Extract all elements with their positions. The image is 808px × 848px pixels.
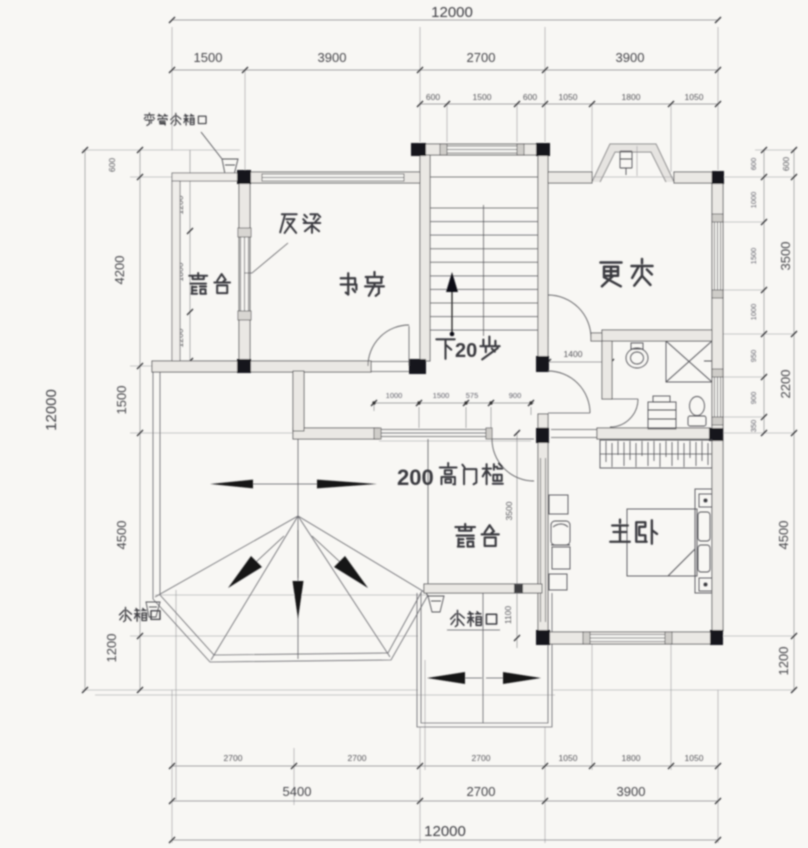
svg-text:600: 600 xyxy=(523,92,537,102)
svg-text:1000: 1000 xyxy=(386,391,403,400)
svg-text:600: 600 xyxy=(749,158,758,171)
svg-text:5400: 5400 xyxy=(283,784,312,799)
svg-text:900: 900 xyxy=(509,391,522,400)
svg-text:20: 20 xyxy=(455,340,477,362)
svg-text:2700: 2700 xyxy=(467,784,496,799)
svg-text:1100: 1100 xyxy=(503,606,513,625)
svg-text:600: 600 xyxy=(781,157,791,171)
svg-text:600: 600 xyxy=(426,92,440,102)
svg-text:3500: 3500 xyxy=(778,242,793,271)
svg-text:2700: 2700 xyxy=(467,50,496,65)
svg-text:2700: 2700 xyxy=(472,753,491,763)
svg-text:1500: 1500 xyxy=(473,92,492,102)
svg-text:2200: 2200 xyxy=(778,370,793,399)
svg-text:1500: 1500 xyxy=(749,248,758,265)
svg-text:900: 900 xyxy=(749,392,758,405)
svg-text:950: 950 xyxy=(749,350,758,363)
svg-text:4200: 4200 xyxy=(112,256,127,285)
svg-text:600: 600 xyxy=(107,158,117,172)
svg-text:2700: 2700 xyxy=(348,753,367,763)
svg-text:1800: 1800 xyxy=(622,753,641,763)
svg-text:12000: 12000 xyxy=(43,389,60,431)
svg-text:1050: 1050 xyxy=(685,92,704,102)
svg-text:4500: 4500 xyxy=(776,521,791,550)
svg-text:12000: 12000 xyxy=(431,4,473,21)
svg-text:3900: 3900 xyxy=(318,50,347,65)
svg-text:1200: 1200 xyxy=(776,647,791,676)
svg-text:1500: 1500 xyxy=(194,50,223,65)
svg-text:3900: 3900 xyxy=(617,784,646,799)
svg-text:12000: 12000 xyxy=(424,823,466,840)
svg-text:1000: 1000 xyxy=(749,192,758,209)
svg-text:3500: 3500 xyxy=(504,501,514,520)
svg-text:1050: 1050 xyxy=(559,92,578,102)
svg-text:1800: 1800 xyxy=(622,92,641,102)
svg-text:1050: 1050 xyxy=(559,753,578,763)
svg-text:1050: 1050 xyxy=(685,753,704,763)
svg-text:1200: 1200 xyxy=(104,634,119,663)
svg-text:4500: 4500 xyxy=(114,521,129,550)
svg-text:2700: 2700 xyxy=(224,753,243,763)
svg-text:575: 575 xyxy=(466,391,479,400)
svg-text:1400: 1400 xyxy=(564,349,583,359)
svg-text:1500: 1500 xyxy=(114,386,129,415)
svg-text:1000: 1000 xyxy=(749,304,758,321)
svg-text:200: 200 xyxy=(397,465,434,490)
svg-text:1500: 1500 xyxy=(433,391,450,400)
svg-text:350: 350 xyxy=(749,420,758,433)
svg-text:3900: 3900 xyxy=(616,50,645,65)
